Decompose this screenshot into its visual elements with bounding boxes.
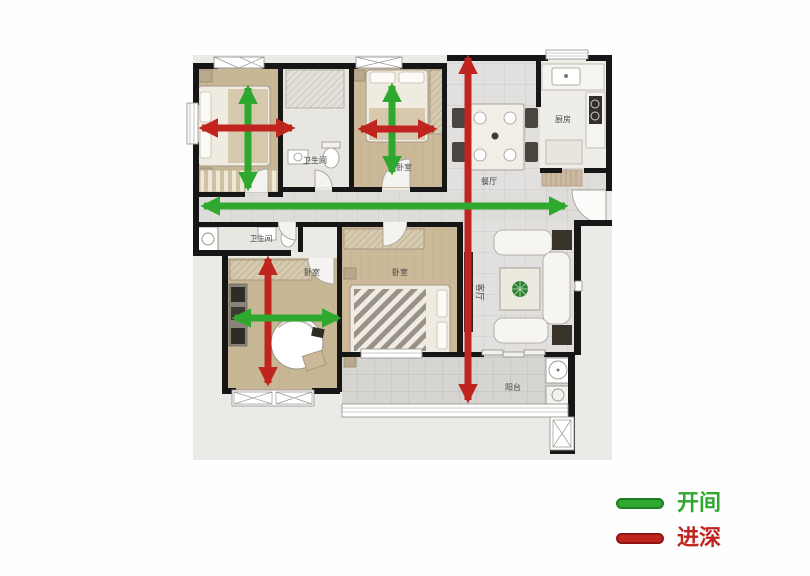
room-label-bathroom-south: 卫生间 [250, 233, 273, 243]
legend: 开间 进深 [616, 490, 721, 560]
room-label-bedroom-north: 卧室 [396, 162, 412, 172]
room-label-bedroom-southwest: 卧室 [304, 267, 320, 277]
side-table [552, 230, 572, 250]
side-table [552, 325, 572, 345]
balcony-sill [342, 404, 568, 417]
bay-color-swatch [616, 498, 664, 509]
room-label-kitchen: 厨房 [555, 114, 571, 124]
legend-item-bay: 开间 [616, 490, 721, 516]
window-kitchen [546, 50, 588, 59]
room-label-living-room: 客厅 [475, 283, 485, 301]
legend-item-depth: 进深 [616, 525, 721, 551]
window-living [575, 281, 582, 291]
depth-label: 进深 [677, 527, 721, 549]
dining-chair [525, 142, 538, 162]
washer [198, 227, 218, 251]
screenshot-root: 卫生间卧室餐厅厨房卫生间卧室卧室客厅阳台 开间 进深 [0, 0, 810, 576]
room-label-bedroom-master: 卧室 [392, 267, 408, 277]
nightstand [198, 70, 212, 82]
depth-color-swatch [616, 533, 664, 544]
room-label-dining-room: 餐厅 [481, 177, 497, 186]
dining-chair [452, 142, 465, 162]
room-label-bathroom-north: 卫生间 [303, 155, 327, 165]
sliding-door [524, 350, 545, 355]
sliding-door [503, 352, 524, 357]
sofa-right [543, 252, 570, 324]
duvet [354, 289, 426, 351]
room-label-balcony: 阳台 [505, 382, 521, 392]
window-master [361, 349, 422, 358]
dining-chair [525, 108, 538, 128]
window-west [187, 103, 198, 144]
bay-label: 开间 [677, 492, 721, 514]
sofa-top [494, 230, 552, 255]
bay-window-sw [232, 390, 314, 406]
sliding-door [482, 350, 503, 355]
dining-chair [452, 108, 465, 128]
sofa-bottom [494, 318, 548, 343]
window-nw [214, 57, 264, 68]
